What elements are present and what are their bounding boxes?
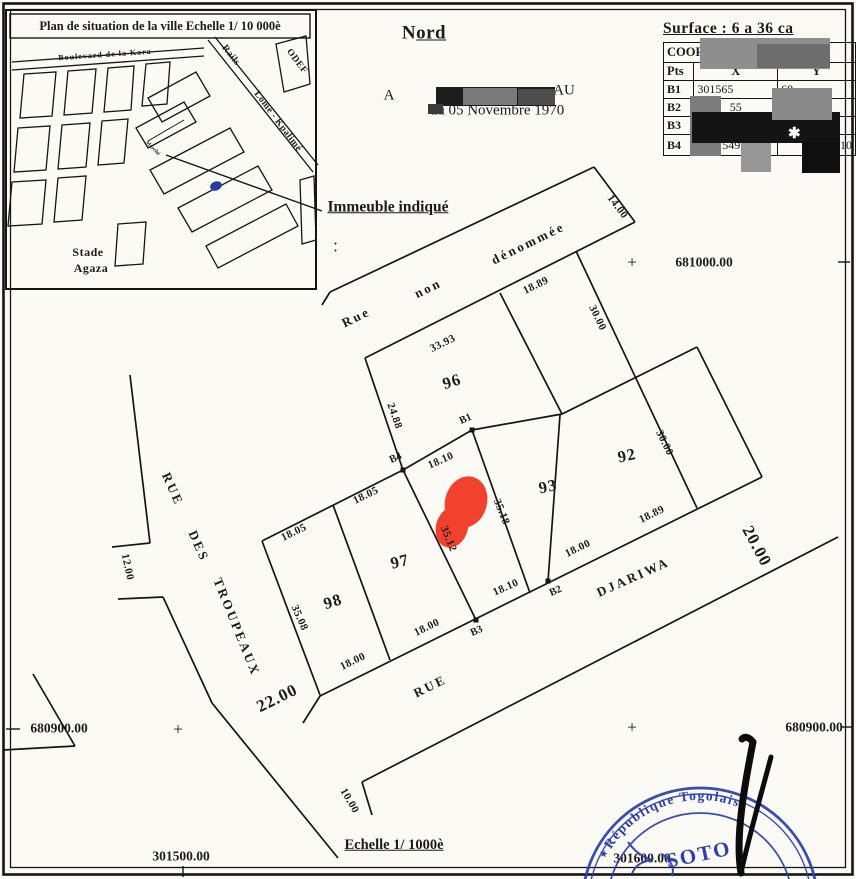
north-label: Nord [402,24,446,43]
street-rue-des-troupeaux-3: TROUPEAUX [211,576,262,678]
stade-agaza-line2: Agaza [74,262,109,274]
dim-18-10-bottom: 18.10 [492,578,521,599]
grid-cross-sw: + [173,721,183,738]
dim-18-10-top: 18.10 [427,451,456,472]
dim-35-12: 35.12 [438,525,458,554]
dim-18-89-top: 18.89 [522,275,551,297]
dim-18-05-b: 18.05 [280,522,309,544]
dim-18-00-a: 18.00 [564,538,593,560]
street-rue-non-denommee-3: dénommée [489,220,567,267]
grid-cross-ne: + [627,254,637,271]
dim-35-18: 35.18 [491,498,511,527]
point-b2-label: B2 [548,585,563,600]
redaction [463,88,517,105]
redaction [772,88,832,120]
dim-12-00: 12.00 [119,553,135,581]
redaction [518,89,555,105]
dim-22-00: 22.00 [254,681,300,715]
grid-cross-se: + [627,719,637,736]
redaction [757,44,830,68]
point-b1-label: B1 [458,413,473,428]
dim-18-00-c: 18.00 [339,651,368,673]
coord-301500: 301500.00 [152,849,209,863]
dim-30-00-lower: 30.00 [653,429,675,458]
plot-98: 98 [322,591,345,612]
dim-30-00-upper: 30.00 [586,304,608,333]
odef-label: ODEF [284,48,309,76]
rails-label: Rails [219,44,241,68]
dim-10-00: 10.00 [338,787,361,816]
plot-96: 96 [441,371,464,392]
dim-18-00-b: 18.00 [413,617,442,639]
street-boulevard-kara: Boulevard de la Kara [58,48,152,63]
inset-map-title: Plan de situation de la ville Echelle 1/… [39,20,280,33]
point-b4-label: B4 [388,452,403,467]
stade-agaza-line1: Stade [72,246,103,258]
dim-18-89-bottom: 18.89 [638,504,667,526]
dim-20-00: 20.00 [739,523,774,569]
dim-14-00: 14.00 [605,193,630,221]
coord-680900-right: 680900.00 [785,720,842,734]
street-rue-des-troupeaux-1: RUE [160,470,186,507]
street-djariwa: DJARIWA [595,555,672,599]
coord-680900-left: 680900.00 [30,721,87,735]
doc-line1-prefix: A [384,89,395,104]
coord-681000: 681000.00 [675,255,732,269]
plot-93: 93 [537,477,559,497]
dim-33-93: 33.93 [429,333,458,355]
scanned-cadastral-plan: { "colors":{"ink":"#1b1b1b","accent_red"… [0,0,856,879]
plot-92: 92 [616,446,638,466]
dim-24-88: 24.88 [384,402,403,431]
dim-35-08: 35.08 [289,604,310,633]
street-rue-bottom: RUE [411,672,448,699]
street-rue-des-troupeaux-2: DES [186,528,211,563]
marche-label: Marché [144,141,161,158]
dim-18-05-a: 18.05 [352,485,381,507]
point-b3-label: B3 [469,625,484,640]
redaction [428,104,443,114]
redaction [741,143,771,172]
plot-97: 97 [389,552,411,572]
indicated-building-label: Immeuble indiqué [327,199,448,215]
street-lome-kpalime: Lomé - Kpalimé [251,90,303,154]
redaction-star-mark: ✱ [788,124,801,143]
street-rue-non-denommee-1: Rue [340,305,373,330]
street-rue-non-denommee-2: non [412,276,443,300]
coord-301600: 301600.00 [613,851,670,865]
redaction [802,142,840,173]
doc-line1-suffix: AU [553,84,575,99]
scale-label: Echelle 1/ 1000è [344,838,443,853]
